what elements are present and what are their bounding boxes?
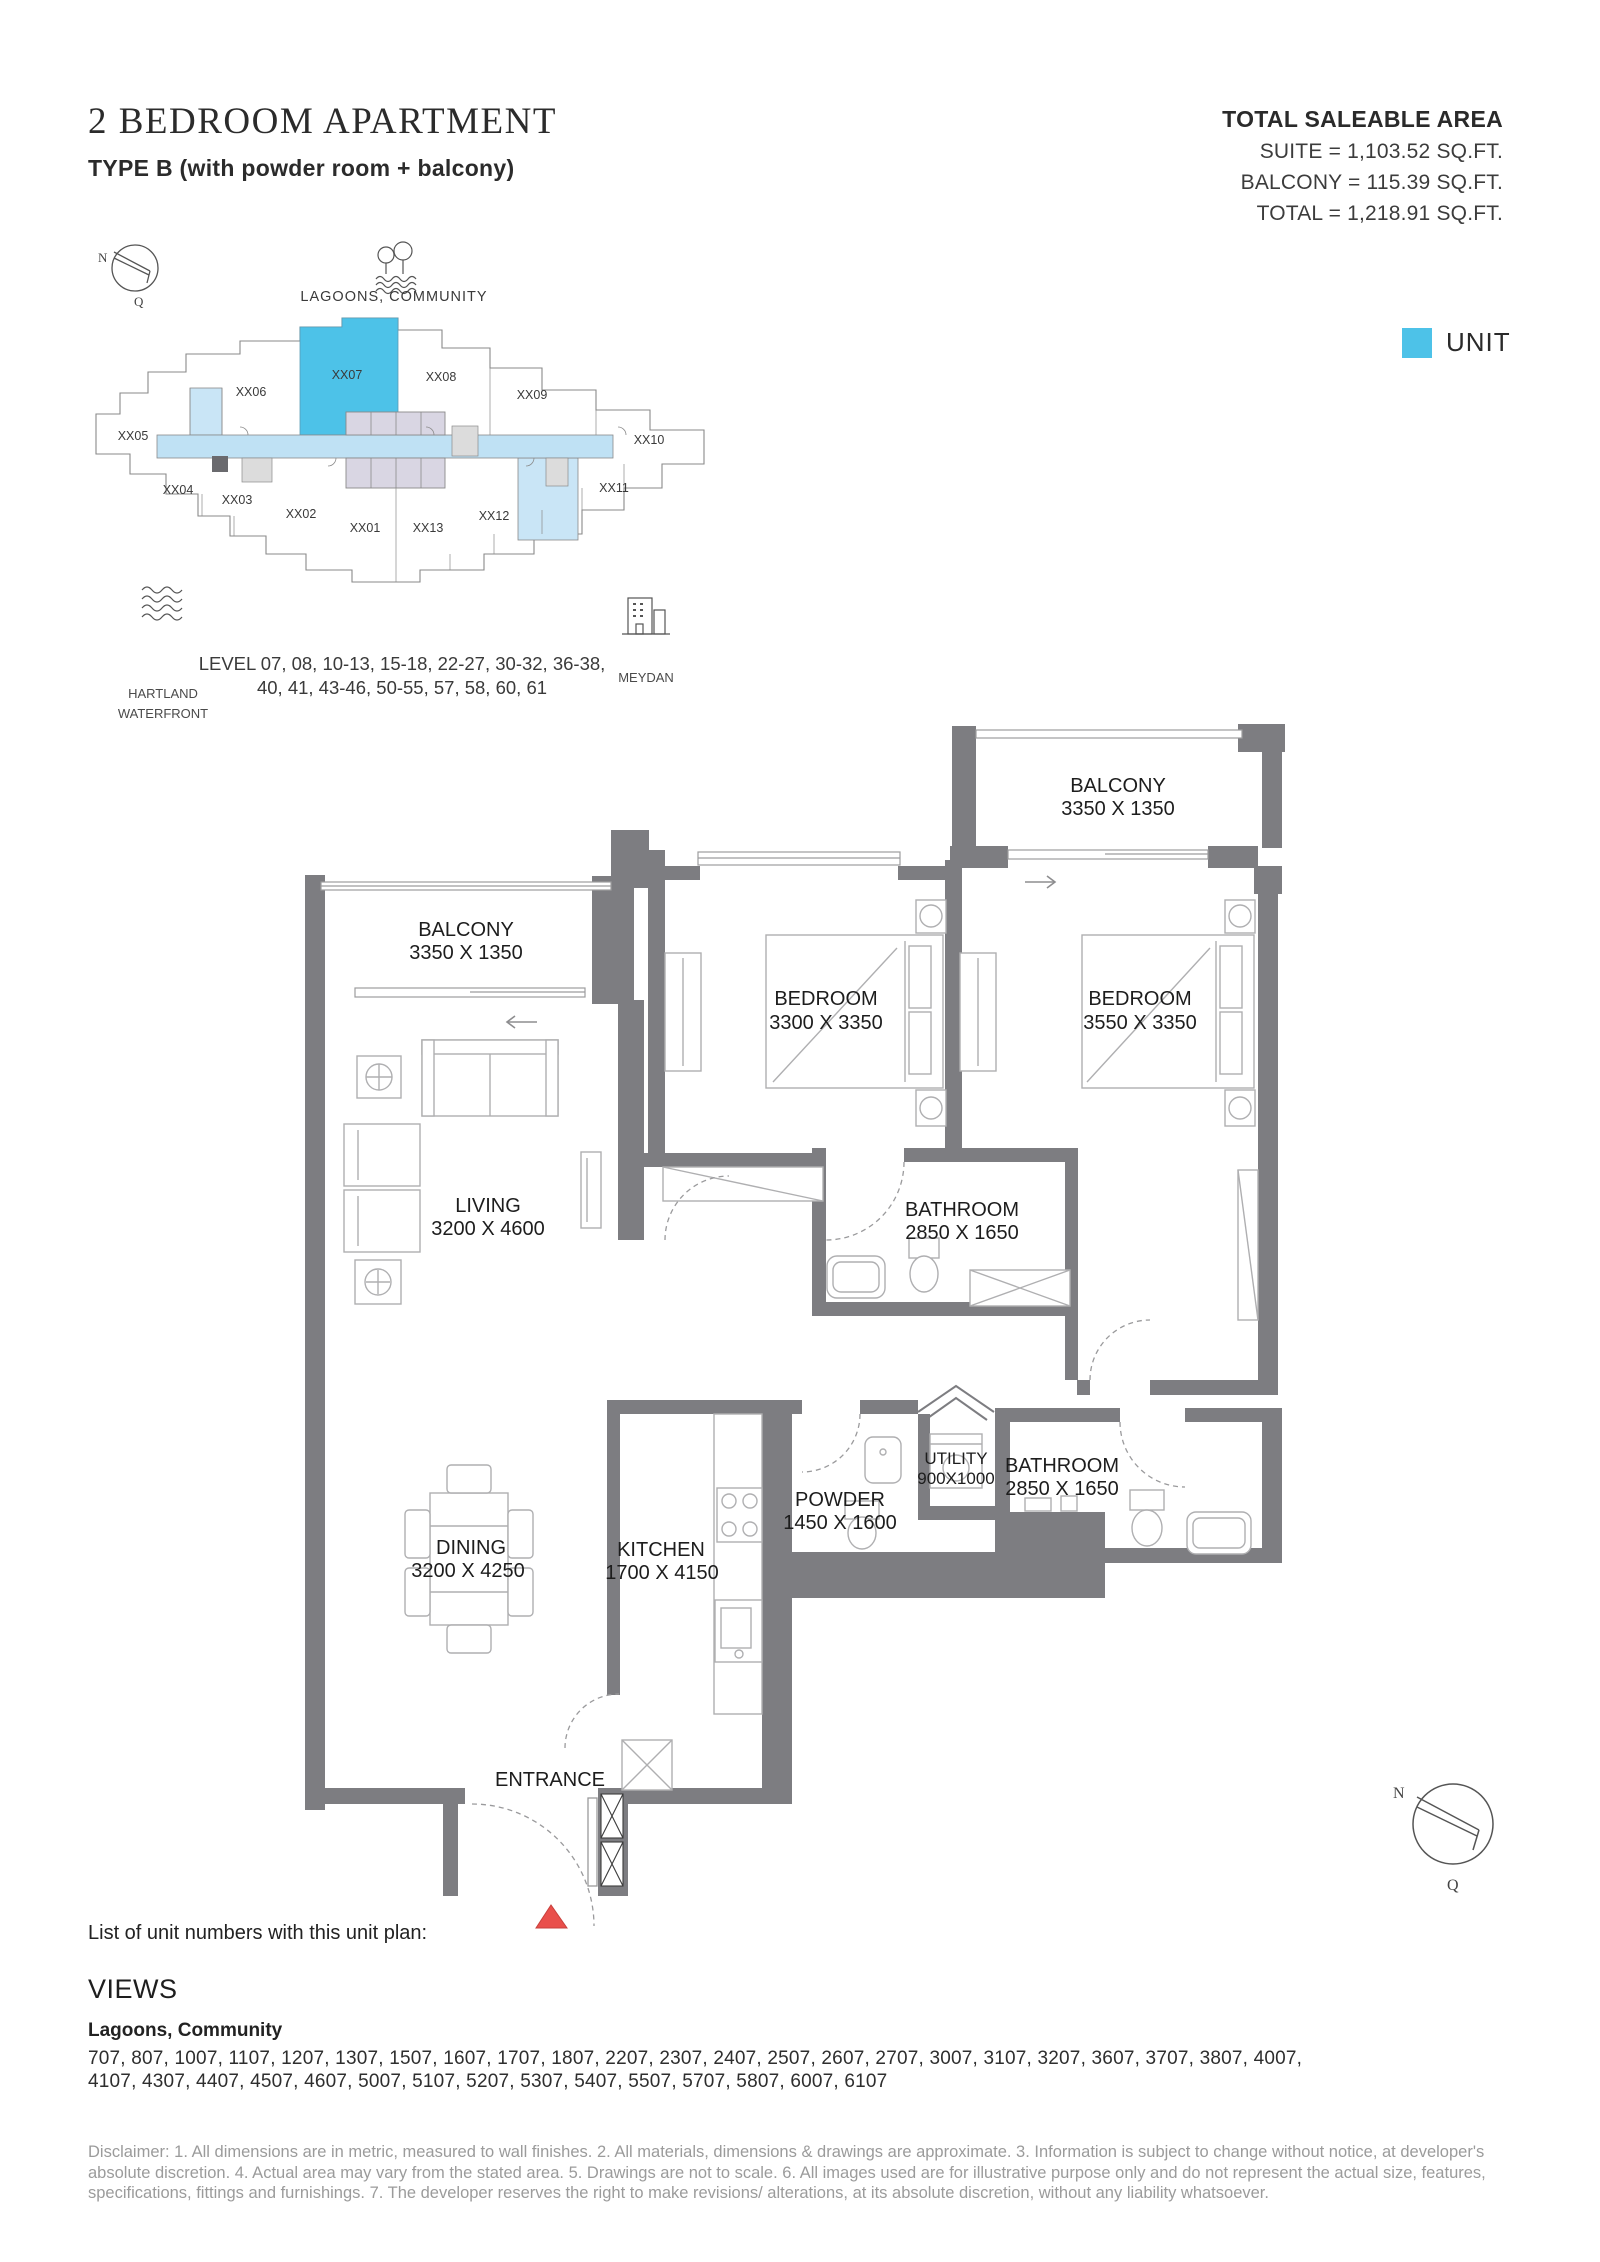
total-area: TOTAL = 1,218.91 SQ.FT. — [1222, 202, 1503, 226]
room-label-utility: UTILITY — [924, 1449, 987, 1468]
balcony-area: BALCONY = 115.39 SQ.FT. — [1222, 171, 1503, 195]
floor-plan: BALCONY 3350 X 1350 BALCONY 3350 X 1350 … — [225, 700, 1295, 1945]
hartland-label-2: WATERFRONT — [118, 706, 208, 720]
room-dims-bedroom-2: 3550 X 3350 — [1083, 1012, 1196, 1034]
room-label-entrance: ENTRANCE — [495, 1769, 605, 1791]
compass-south-label: Q — [134, 294, 144, 309]
room-label-bathroom-1: BATHROOM — [905, 1199, 1019, 1221]
room-label-living: LIVING — [455, 1195, 521, 1217]
room-dims-balcony-left: 3350 X 1350 — [409, 942, 522, 964]
key-unit-xx02: XX02 — [286, 507, 317, 521]
room-dims-bedroom-1: 3300 X 3350 — [769, 1012, 882, 1034]
room-label-powder: POWDER — [795, 1489, 885, 1511]
suite-area: SUITE = 1,103.52 SQ.FT. — [1222, 140, 1503, 164]
compass-bottom-north-label: N — [1393, 1785, 1405, 1802]
page-title: 2 BEDROOM APARTMENT — [88, 100, 557, 143]
lagoons-label: LAGOONS, COMMUNITY — [300, 289, 487, 305]
room-dims-bathroom-2: 2850 X 1650 — [1005, 1478, 1118, 1500]
room-label-bedroom-1: BEDROOM — [774, 988, 877, 1010]
waves-icon — [142, 587, 182, 620]
room-label-dining: DINING — [436, 1537, 506, 1559]
key-unit-xx06: XX06 — [236, 385, 267, 399]
room-label-bedroom-2: BEDROOM — [1088, 988, 1191, 1010]
room-dims-living: 3200 X 4600 — [431, 1218, 544, 1240]
room-labels: BALCONY 3350 X 1350 BALCONY 3350 X 1350 … — [409, 775, 1196, 1791]
room-dims-powder: 1450 X 1600 — [783, 1512, 896, 1534]
disclaimer-text: Disclaimer: 1. All dimensions are in met… — [88, 2142, 1518, 2204]
room-label-kitchen: KITCHEN — [617, 1539, 705, 1561]
views-value: Lagoons, Community — [88, 2020, 282, 2042]
header: 2 BEDROOM APARTMENT TYPE B (with powder … — [88, 100, 557, 182]
unit-legend: UNIT — [1402, 327, 1511, 358]
unit-numbers-line2: 4107, 4307, 4407, 4507, 4607, 5007, 5107… — [88, 2071, 887, 2093]
room-dims-utility: 900X1000 — [917, 1469, 995, 1488]
key-unit-xx09: XX09 — [517, 388, 548, 402]
views-heading: VIEWS — [88, 1974, 178, 2005]
key-unit-xx05: XX05 — [118, 429, 149, 443]
floorplan-page: 2 BEDROOM APARTMENT TYPE B (with powder … — [0, 0, 1600, 2262]
room-dims-kitchen: 1700 X 4150 — [605, 1562, 718, 1584]
key-unit-xx13: XX13 — [413, 521, 444, 535]
hartland-label-1: HARTLAND — [128, 686, 198, 701]
key-unit-xx04: XX04 — [163, 483, 194, 497]
unit-swatch-icon — [1402, 328, 1432, 358]
floor-plan-walls — [305, 724, 1285, 1896]
saleable-area-heading: TOTAL SALEABLE AREA — [1222, 106, 1503, 133]
key-unit-xx07: XX07 — [332, 368, 363, 382]
compass-bottom-south-label: Q — [1447, 1877, 1459, 1894]
key-unit-xx11: XX11 — [599, 481, 629, 495]
compass-icon — [112, 245, 158, 291]
unit-numbers-line1: 707, 807, 1007, 1107, 1207, 1307, 1507, … — [88, 2048, 1302, 2070]
key-unit-xx10: XX10 — [634, 433, 665, 447]
room-dims-bathroom-1: 2850 X 1650 — [905, 1222, 1018, 1244]
saleable-area-block: TOTAL SALEABLE AREA SUITE = 1,103.52 SQ.… — [1222, 106, 1503, 226]
lagoons-trees-icon — [376, 242, 416, 294]
key-unit-xx01: XX01 — [350, 521, 381, 535]
meydan-label: MEYDAN — [618, 670, 674, 685]
room-dims-dining: 3200 X 4250 — [411, 1560, 524, 1582]
room-label-balcony-top: BALCONY — [1070, 775, 1166, 797]
page-subtitle: TYPE B (with powder room + balcony) — [88, 155, 557, 182]
key-unit-xx03: XX03 — [222, 493, 253, 507]
key-unit-xx08: XX08 — [426, 370, 457, 384]
meydan-building-icon — [622, 598, 670, 634]
compass-icon-bottom: N Q — [1385, 1772, 1525, 1897]
compass-north-label: N — [98, 250, 108, 265]
key-unit-xx12: XX12 — [479, 509, 510, 523]
unit-list-intro: List of unit numbers with this unit plan… — [88, 1922, 427, 1945]
room-label-balcony-left: BALCONY — [418, 919, 514, 941]
room-dims-balcony-top: 3350 X 1350 — [1061, 798, 1174, 820]
entrance-marker-icon — [536, 1905, 567, 1928]
level-text-2: 40, 41, 43-46, 50-55, 57, 58, 60, 61 — [257, 677, 547, 698]
key-plan: N Q LAGOONS, COMMUNITY — [90, 238, 710, 720]
unit-legend-label: UNIT — [1446, 327, 1511, 358]
key-plan-footprint: XX01 XX02 XX03 XX04 XX05 XX06 XX07 XX08 … — [96, 318, 704, 582]
room-label-bathroom-2: BATHROOM — [1005, 1455, 1119, 1477]
level-text-1: LEVEL 07, 08, 10-13, 15-18, 22-27, 30-32… — [199, 653, 606, 674]
key-plan-corridor — [157, 435, 613, 458]
